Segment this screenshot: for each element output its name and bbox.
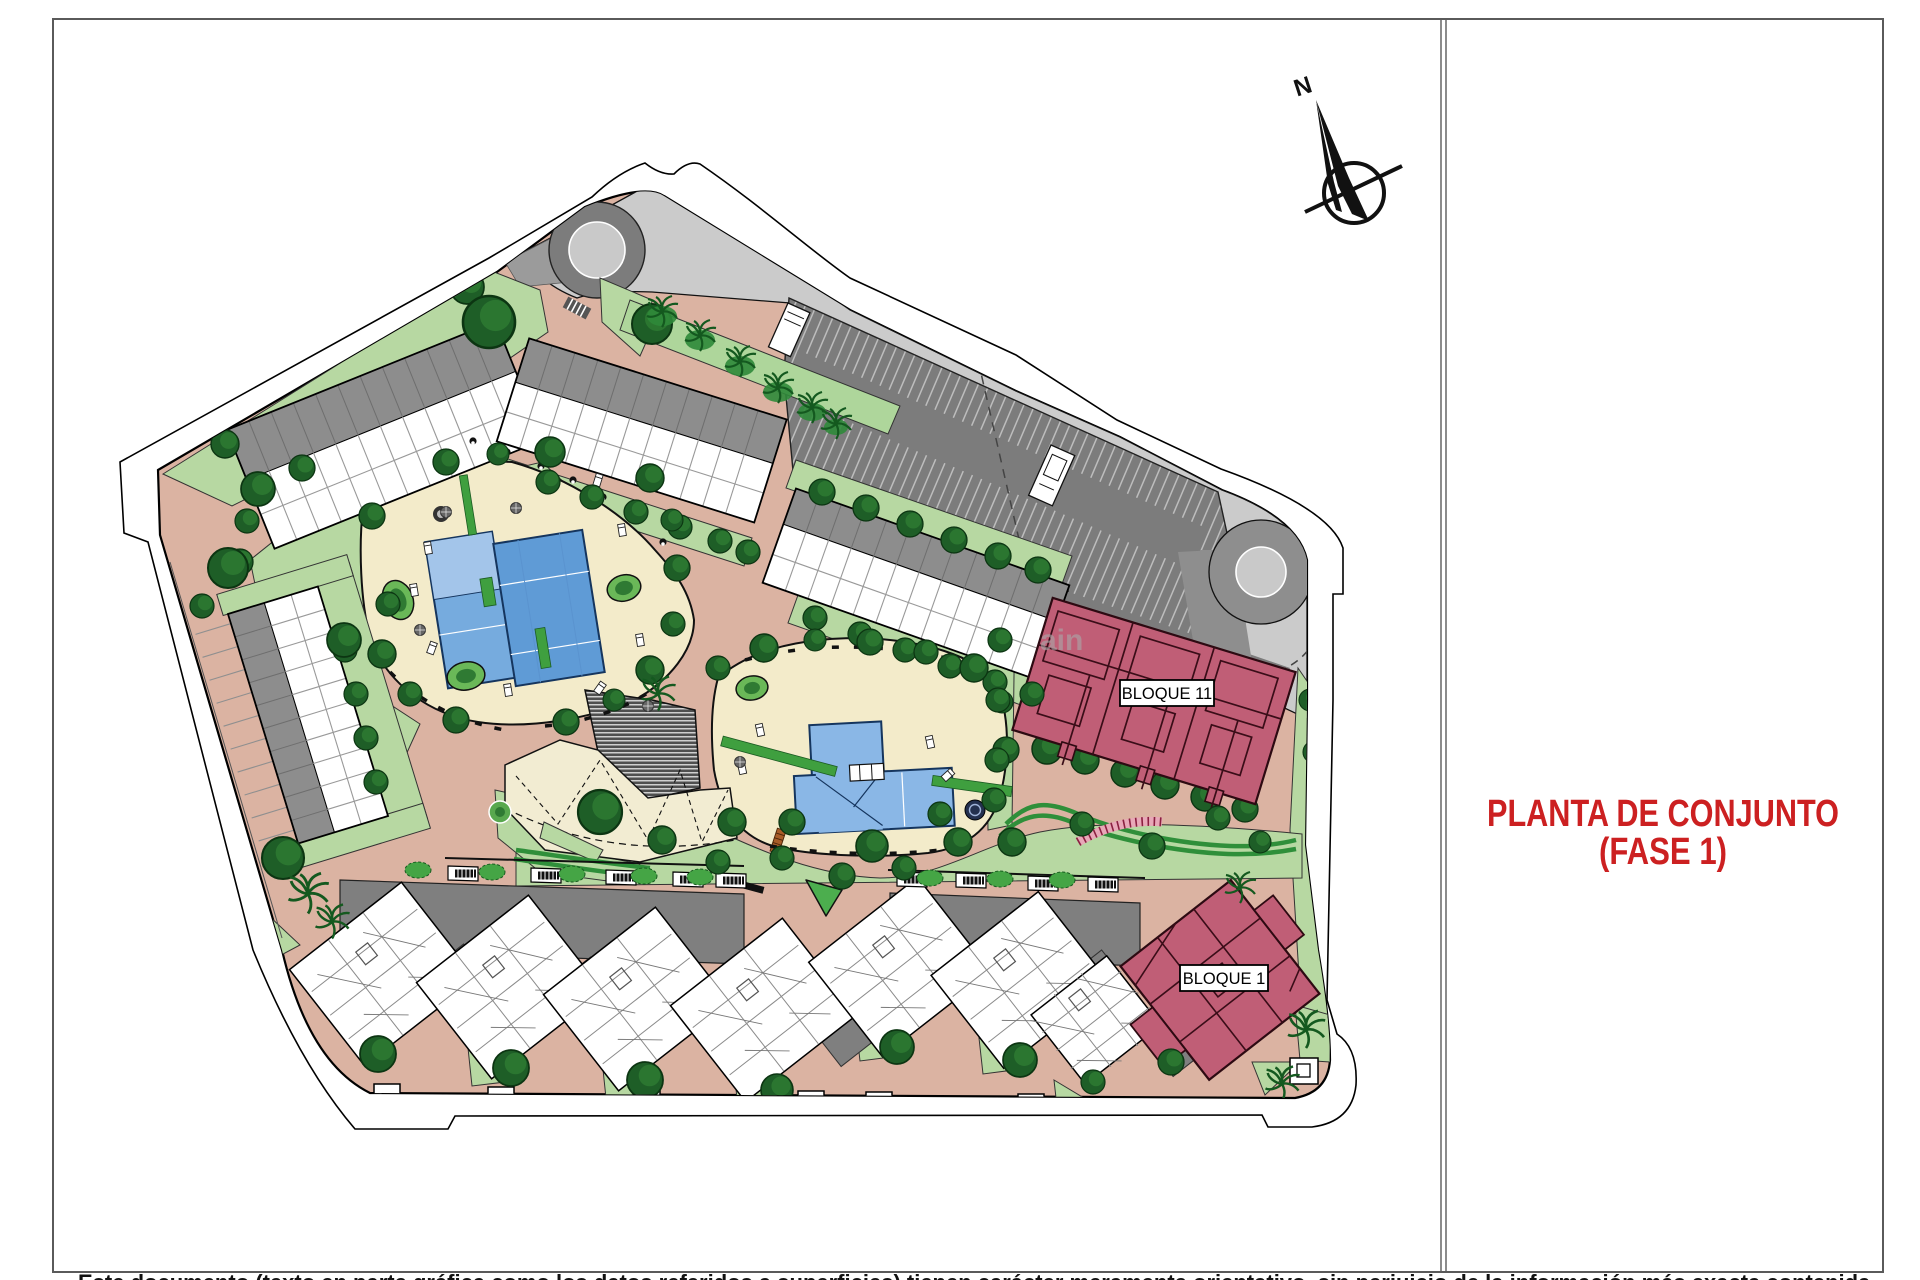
- svg-text:(FASE 1): (FASE 1): [1599, 831, 1727, 873]
- svg-text:N: N: [1290, 71, 1315, 102]
- svg-text:Este documento (texto en parte: Este documento (texto en parte gráfica c…: [78, 1270, 1871, 1280]
- svg-text:ain: ain: [1040, 624, 1083, 657]
- svg-text:BLOQUE 1: BLOQUE 1: [1183, 970, 1266, 988]
- svg-text:PLANTA DE CONJUNTO: PLANTA DE CONJUNTO: [1487, 793, 1839, 835]
- svg-text:BLOQUE 11: BLOQUE 11: [1122, 685, 1212, 703]
